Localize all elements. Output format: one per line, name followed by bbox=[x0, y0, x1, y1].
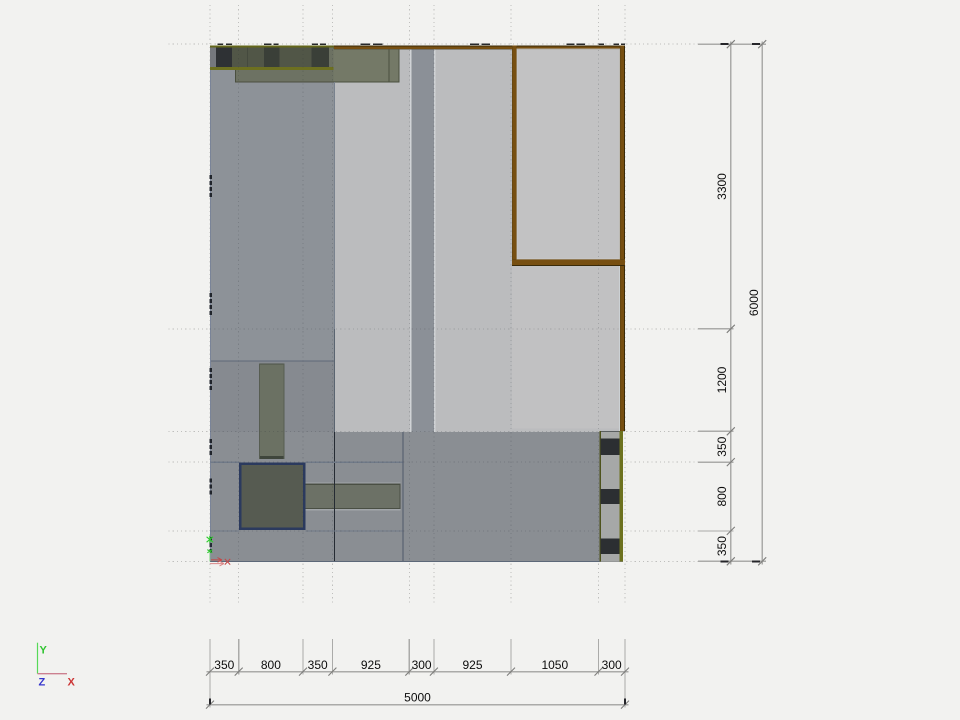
svg-text:350: 350 bbox=[715, 536, 729, 556]
svg-text:300: 300 bbox=[412, 658, 432, 672]
svg-text:925: 925 bbox=[462, 658, 482, 672]
svg-text:Y: Y bbox=[40, 645, 48, 657]
svg-text:3300: 3300 bbox=[715, 173, 729, 200]
svg-text:1050: 1050 bbox=[541, 658, 568, 672]
svg-text:Z: Z bbox=[39, 677, 46, 689]
svg-text:925: 925 bbox=[361, 658, 381, 672]
svg-text:5000: 5000 bbox=[404, 691, 431, 705]
svg-text:350: 350 bbox=[715, 436, 729, 456]
svg-text:1200: 1200 bbox=[715, 366, 729, 393]
svg-text:800: 800 bbox=[715, 486, 729, 506]
svg-text:6000: 6000 bbox=[747, 289, 761, 316]
svg-text:X: X bbox=[68, 677, 76, 689]
svg-text:350: 350 bbox=[214, 658, 234, 672]
svg-text:300: 300 bbox=[602, 658, 622, 672]
svg-text:800: 800 bbox=[261, 658, 281, 672]
svg-text:350: 350 bbox=[308, 658, 328, 672]
